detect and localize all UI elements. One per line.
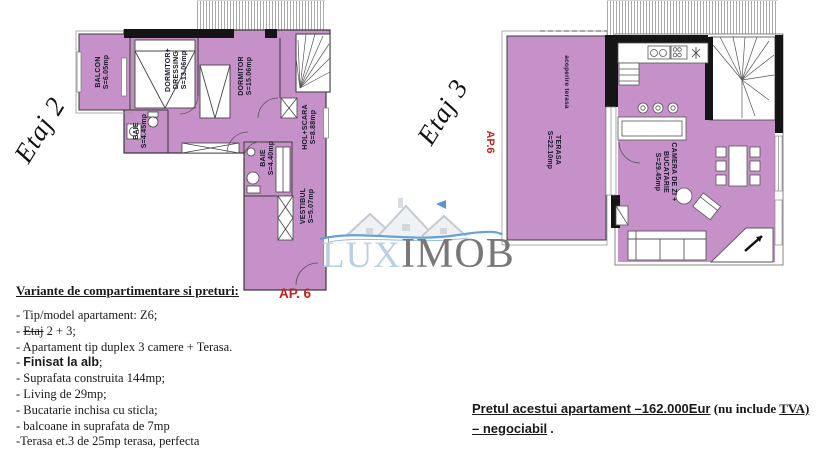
- text-segment: Finisat la alb: [23, 355, 99, 369]
- text-line: - Suprafata construita 144mp;: [16, 371, 350, 387]
- text-segment: TVA): [779, 401, 809, 416]
- stairs-icon: [296, 34, 330, 92]
- text-segment: Etaj: [23, 324, 43, 338]
- room-label-terasa: TERASA S=22.10mp: [545, 131, 561, 170]
- room-label-baie: BAIE S=4.45mp: [133, 114, 149, 148]
- text-segment: (nu include: [710, 401, 779, 416]
- text-line: Pretul acestui apartament –162.000Eur (n…: [472, 399, 828, 419]
- text-line: - balcoane in suprafata de 7mp: [16, 419, 350, 435]
- text-line: – negociabil .: [472, 419, 828, 439]
- room-label-vestibul: VESTIBUL S=5.07mp: [300, 188, 316, 224]
- text-segment: - Apartament tip duplex 3 camere + Teras…: [16, 340, 232, 354]
- text-line: - Tip/model apartament: Z6;: [16, 308, 350, 324]
- ap-number-etaj3: AP.6: [484, 130, 496, 153]
- specs-heading: Variante de compartimentare si preturi:: [16, 283, 239, 299]
- room-label-baie2: BAIE S=4.40mp: [260, 141, 276, 175]
- room-label-dormitor-dressing: DORMITOR+ DRESSING S=13.06mp: [165, 48, 189, 92]
- text-line: - Bucatarie inchisa cu sticla;: [16, 403, 350, 419]
- room-label-balcon: BALCON S=6.05mp: [95, 55, 111, 89]
- text-segment: - Bucatarie inchisa cu sticla;: [16, 403, 158, 417]
- text-line: -Terasa et.3 de 25mp terasa, perfecta: [16, 434, 350, 450]
- stairs-icon: [710, 37, 775, 120]
- floorplan-etaj2-drawing: [60, 0, 340, 310]
- specs-lines: - Tip/model apartament: Z6;- Etaj 2 + 3;…: [16, 308, 350, 450]
- text-segment: - Suprafata construita 144mp;: [16, 371, 165, 385]
- text-segment: -Terasa et.3 de 25mp terasa, perfecta: [16, 434, 199, 448]
- text-line: - Living de 29mp;: [16, 387, 350, 403]
- room-label-camera-zi: CAMERA DE ZI + BUCATARIE S=29.45mp: [653, 142, 677, 201]
- price-block: Pretul acestui apartament –162.000Eur (n…: [472, 399, 828, 438]
- side-table-icon: [616, 206, 628, 225]
- text-segment: - balcoane in suprafata de 7mp: [16, 419, 170, 433]
- text-segment: Pretul acestui apartament –162.000Eur: [472, 401, 710, 416]
- text-segment: ;: [99, 355, 102, 369]
- room-label-acoperire: acoperire terasa: [562, 55, 570, 108]
- text-line: - Apartament tip duplex 3 camere + Teras…: [16, 340, 350, 356]
- text-segment: - Living de 29mp;: [16, 387, 107, 401]
- room-label-dormitor: DORMITOR S=15.06mp: [238, 56, 254, 96]
- round-table-icon: [676, 188, 692, 204]
- wordmark-lux: LUX: [322, 235, 401, 276]
- room-label-hol-scara: HOL+SCARA S=8.88mp: [302, 104, 318, 150]
- dining-table-icon: [716, 146, 760, 186]
- text-line: - Finisat la alb;: [16, 355, 350, 371]
- floorplan-sheet: Etaj 2 Etaj 3: [0, 0, 830, 460]
- luximob-wordmark: LUXIMOB: [322, 230, 515, 278]
- text-segment: 2 + 3;: [43, 324, 75, 338]
- luximob-watermark: LUXIMOB: [318, 196, 504, 286]
- wordmark-imob: IMOB: [401, 231, 515, 277]
- closet-icon: [278, 196, 293, 240]
- text-segment: - Tip/model apartament: Z6;: [16, 308, 157, 322]
- text-segment: .: [547, 421, 554, 436]
- specs-block: Variante de compartimentare si preturi: …: [16, 283, 350, 450]
- text-segment: – negociabil: [472, 421, 547, 436]
- sofa-icon: [628, 231, 706, 260]
- text-line: - Etaj 2 + 3;: [16, 324, 350, 340]
